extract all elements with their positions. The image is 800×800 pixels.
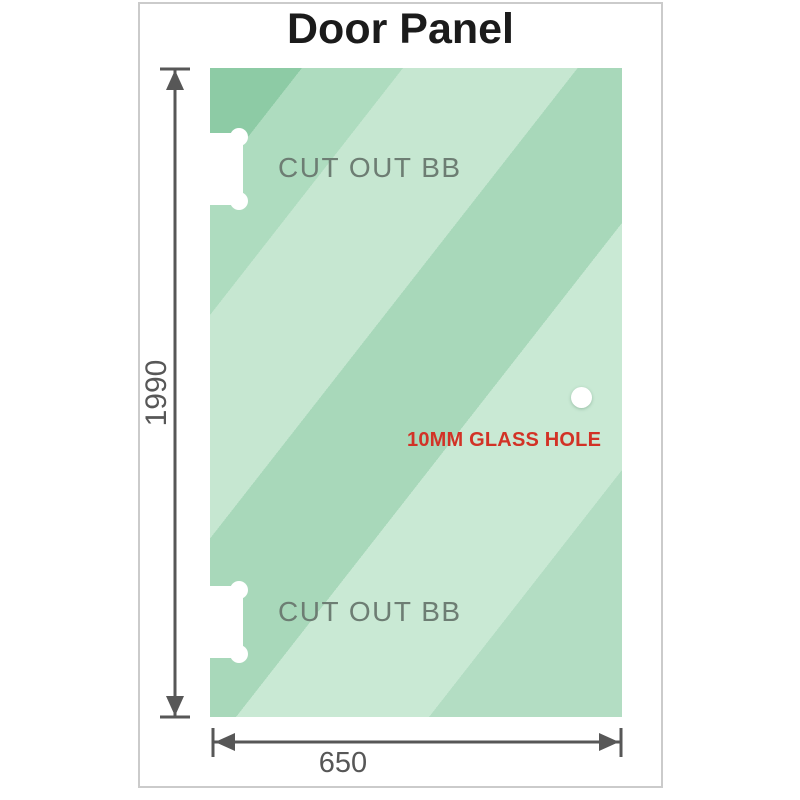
cutout-top-label: CUT OUT BB	[278, 152, 462, 184]
cutout-drill-hole	[230, 128, 248, 146]
glass-hole	[571, 387, 592, 408]
height-dimension-label: 1990	[142, 333, 172, 453]
cutout-drill-hole	[230, 192, 248, 210]
cutout-drill-hole	[230, 581, 248, 599]
width-dimension-label: 650	[293, 747, 393, 780]
door-panel-diagram: Door Panel CUT OUT BB CUT OUT BB 10MM GL…	[0, 0, 800, 800]
glass-hole-label: 10MM GLASS HOLE	[407, 429, 601, 452]
diagram-title: Door Panel	[138, 5, 663, 54]
cutout-drill-hole	[230, 645, 248, 663]
cutout-bottom-label: CUT OUT BB	[278, 596, 462, 628]
